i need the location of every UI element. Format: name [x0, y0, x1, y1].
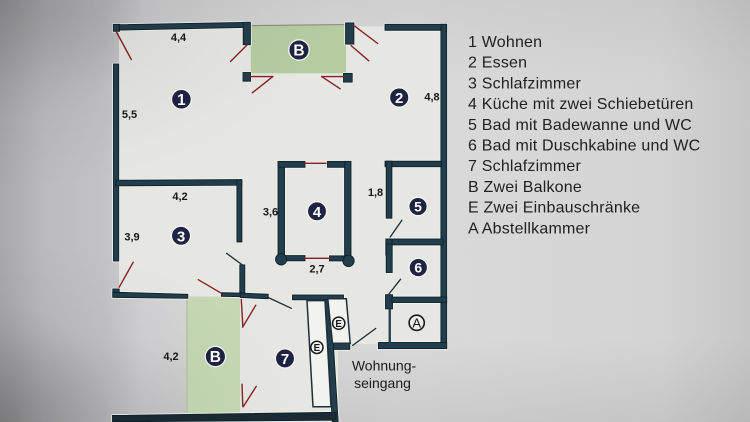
svg-text:3 Schlafzimmer: 3 Schlafzimmer	[468, 75, 582, 92]
svg-text:4,2: 4,2	[172, 191, 187, 203]
svg-text:1 Wohnen: 1 Wohnen	[468, 34, 542, 51]
svg-text:E Zwei Einbauschränke: E Zwei Einbauschränke	[468, 200, 640, 217]
svg-text:4: 4	[313, 204, 322, 221]
svg-text:A: A	[412, 316, 421, 331]
svg-text:A Abstellkammer: A Abstellkammer	[468, 220, 591, 237]
svg-text:1,8: 1,8	[368, 187, 383, 199]
svg-text:7 Schlafzimmer: 7 Schlafzimmer	[468, 158, 582, 175]
svg-text:4,8: 4,8	[424, 92, 439, 104]
svg-text:3,6: 3,6	[263, 207, 278, 219]
svg-text:6 Bad mit Duschkabine und WC: 6 Bad mit Duschkabine und WC	[468, 138, 700, 155]
svg-text:E: E	[314, 343, 321, 354]
svg-text:2: 2	[395, 90, 403, 107]
svg-text:2 Essen: 2 Essen	[468, 55, 527, 72]
svg-text:Wohnung-: Wohnung-	[352, 358, 417, 374]
svg-text:4 Küche mit zwei Schiebetüren: 4 Küche mit zwei Schiebetüren	[468, 96, 693, 113]
svg-text:E: E	[335, 319, 342, 330]
svg-text:2,7: 2,7	[309, 264, 324, 276]
svg-text:5: 5	[414, 199, 422, 215]
svg-text:B Zwei Balkone: B Zwei Balkone	[468, 179, 582, 196]
svg-text:5 Bad mit Badewanne und WC: 5 Bad mit Badewanne und WC	[468, 117, 692, 134]
svg-text:seingang: seingang	[354, 375, 411, 391]
svg-text:6: 6	[414, 260, 422, 276]
